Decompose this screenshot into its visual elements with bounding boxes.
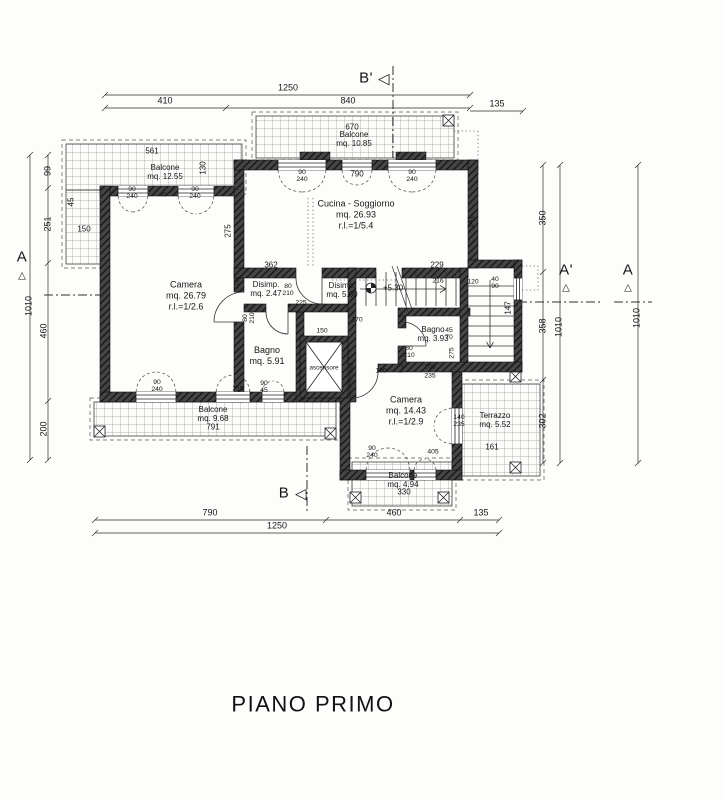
ann-window-90-45: 90 45 (260, 380, 268, 394)
ann-216: 216 (432, 277, 443, 284)
ann-130: 130 (199, 161, 208, 174)
ann-225: 225 (295, 299, 306, 306)
room-label-bagno-1: Bagno mq. 5.91 (249, 345, 284, 367)
ann-235: 235 (424, 372, 435, 379)
room-label-cucina-soggiorno: Cucina - Soggiorno mq. 26.93 r.l.=1/5.4 (317, 199, 394, 232)
ann-405: 405 (427, 448, 438, 455)
ann-window-90-240-f: 90 240 (366, 445, 377, 459)
dim-bottom-total: 1250 (267, 522, 287, 531)
section-marker-b: B (279, 489, 290, 498)
ann-229: 229 (430, 261, 443, 270)
ann-window-90-240-d: 90 240 (406, 169, 417, 183)
ann-45-70: 45 70 (445, 327, 453, 341)
dim-left-total: 1010 (25, 296, 34, 316)
section-marker-b-prime-arrow-icon: ◁ (378, 75, 390, 84)
drawing-title: PIANO PRIMO (231, 700, 394, 709)
ann-206: 206 (424, 363, 435, 370)
ann-115: 115 (233, 279, 240, 290)
ann-window-90-240-a: 90 240 (126, 186, 137, 200)
dim-right-2: 358 (539, 318, 548, 333)
dim-left-4: 200 (40, 421, 49, 436)
section-marker-b-prime: B' (359, 74, 373, 83)
ann-window-90-240-b: 90 240 (189, 186, 200, 200)
section-marker-a-prime: A' (559, 266, 573, 275)
ann-window-140-235: 140 235 (453, 414, 464, 428)
terrace-label: Terrazzo mq. 5.52 (479, 411, 510, 429)
section-marker-a-far-right: A (623, 266, 634, 275)
room-label-disimpegno-2: Disimp. mq. 5.60 (326, 281, 357, 299)
dim-right-1: 350 (539, 210, 548, 225)
room-label-disimpegno-1: Disimp. mq. 2.47 (250, 280, 281, 298)
ann-670: 670 (345, 123, 358, 132)
dim-top-total: 1250 (278, 84, 298, 93)
ann-100: 100 (375, 367, 386, 374)
ann-window-90-240-e: 90 240 (151, 379, 162, 393)
dim-bottom-mid: 460 (386, 509, 401, 518)
ann-door-80-210-c: 80 210 (403, 345, 414, 359)
dim-left-2: 251 (44, 216, 53, 231)
ann-161: 161 (485, 443, 498, 452)
room-label-camera-1: Camera mq. 26.79 r.l.=1/2.6 (166, 280, 206, 313)
ann-door-80-210-b: 80 210 (242, 312, 256, 323)
dim-left-1: 99 (44, 166, 53, 176)
room-label-camera-2: Camera mq. 14.43 r.l.=1/2.9 (386, 395, 426, 428)
section-marker-b-arrow-icon: ◁ (295, 490, 307, 499)
dim-bottom-left: 790 (202, 509, 217, 518)
ann-362: 362 (264, 261, 277, 270)
stairs-right-flight (468, 280, 514, 356)
section-marker-a-left: A (17, 253, 28, 262)
ann-elevator-150: 150 (316, 327, 327, 334)
balcony-label-top-left: Balcone mq. 12.55 (147, 163, 183, 181)
level-label: +5.30 (383, 284, 403, 293)
ann-150-balcony: 150 (77, 225, 90, 234)
ann-120: 120 (467, 278, 478, 285)
section-marker-a-far-right-arrow-icon: △ (624, 284, 632, 293)
ann-45: 45 (67, 198, 76, 207)
ann-window-90-240-c: 90 240 (296, 169, 307, 183)
section-marker-a-prime-arrow-icon: △ (562, 284, 570, 293)
ann-790-interior: 790 (350, 170, 363, 179)
ann-window-40: 40 (159, 191, 167, 198)
dim-left-3: 460 (40, 323, 49, 338)
ann-275-bagno2: 275 (448, 347, 455, 358)
dim-top-ext: 135 (489, 100, 504, 109)
ann-window-40-90: 40 90 (491, 276, 499, 290)
ann-147: 147 (504, 301, 513, 314)
ann-door-80-210-a: 80 210 (282, 283, 293, 297)
room-label-bagno-2: Bagno mq. 3.93 (417, 325, 448, 343)
balcony-label-top: Balcone mq. 10.85 (336, 130, 372, 148)
section-marker-a-left-arrow-icon: △ (18, 272, 26, 281)
ann-341: 341 (467, 215, 476, 228)
ann-561: 561 (145, 147, 158, 156)
ann-275-camera1: 275 (224, 224, 233, 237)
ann-791: 791 (206, 423, 219, 432)
dim-right-3: 302 (539, 413, 548, 428)
ann-330: 330 (397, 488, 410, 497)
dim-bottom-ext: 135 (473, 509, 488, 518)
ann-215: 215 (232, 385, 243, 392)
floor-plan-page: B' ◁ B ◁ A △ A' △ A △ Camera mq. 26.79 r… (0, 0, 722, 800)
dim-top-right: 840 (340, 97, 355, 106)
level-symbol (366, 283, 376, 293)
dim-top-left: 410 (157, 97, 172, 106)
dim-far-right-total: 1010 (633, 308, 642, 328)
balcony-label-bottom: Balcone mq. 4.94 (387, 471, 418, 489)
floor-plan-drawing (0, 0, 722, 800)
balcony-label-bottom-left: Balcone mq. 9.68 (197, 405, 228, 423)
ann-170: 170 (351, 316, 362, 323)
dim-right-total: 1010 (555, 317, 564, 337)
elevator-label: ascensore (309, 366, 338, 373)
